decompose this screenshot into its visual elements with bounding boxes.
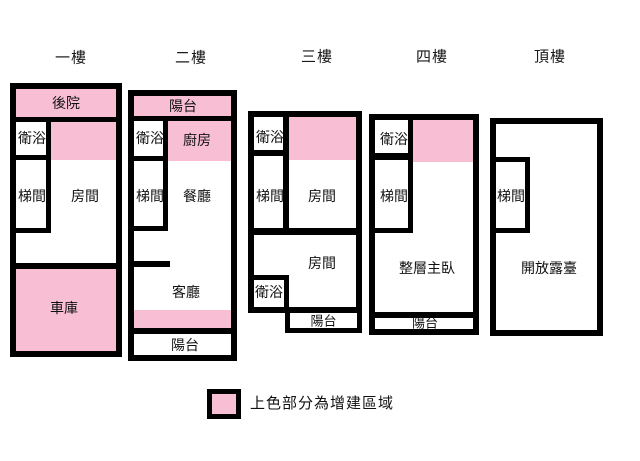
floor-4-wall	[375, 153, 413, 160]
floor-1-label-bathroom: 衛浴	[18, 131, 46, 145]
floor-top-wall	[525, 157, 530, 233]
floor-3-label-room-upper: 房間	[308, 189, 336, 203]
floor-3-wall	[254, 150, 289, 156]
floor-1-title: 一樓	[55, 47, 87, 68]
floor-4-wall	[408, 120, 413, 233]
floor-1-label-room: 房間	[71, 189, 99, 203]
floor-3-label-room-lower: 房間	[308, 256, 336, 270]
floor-4-label-balcony: 陽台	[412, 317, 438, 330]
floor-3-label-bathroom-lower: 衛浴	[255, 285, 283, 299]
floor-2-wall	[134, 328, 231, 334]
floor-2-outline: 陽台衛浴廚房梯間餐廳客廳陽台	[128, 90, 237, 361]
floor-4-label-master-bedroom: 整層主臥	[399, 261, 455, 275]
floor-2-wall	[134, 226, 168, 231]
floor-2-label-bathroom: 衛浴	[136, 131, 164, 145]
floor-2-label-dining-room: 餐廳	[183, 189, 211, 203]
floor-1-outline: 後院衛浴梯間房間車庫	[10, 83, 122, 357]
floor-3-outline: 衛浴梯間房間房間衛浴	[248, 111, 362, 313]
floor-4-outline: 衛浴梯間整層主臥陽台	[369, 114, 479, 335]
floor-3-addition-area	[289, 117, 356, 160]
floor-top-label-open-terrace: 開放露臺	[521, 261, 577, 275]
floor-2-wall	[134, 261, 170, 267]
floor-2-title: 二樓	[175, 47, 207, 68]
floor-1-wall	[16, 228, 51, 233]
floor-3-title: 三樓	[301, 46, 333, 67]
floor-1-label-garage: 車庫	[50, 301, 78, 315]
floor-3-label-bathroom-upper: 衛浴	[256, 130, 284, 144]
floor-top-outline: 梯間開放露臺	[490, 118, 603, 336]
floor-1-wall	[16, 117, 116, 122]
floor-2-wall	[134, 116, 231, 121]
floor-2-label-kitchen: 廚房	[183, 133, 211, 147]
floor-2-label-stairwell: 梯間	[136, 189, 164, 203]
floor-top-title: 頂樓	[534, 46, 566, 67]
floor-1-wall	[16, 155, 51, 160]
floor-2-label-balcony-bottom: 陽台	[171, 338, 199, 352]
floor-3-wall	[254, 228, 356, 235]
floor-3-balcony-annex: 陽台	[285, 313, 362, 333]
floor-3-balcony-annex-label-balcony: 陽台	[310, 314, 336, 327]
floor-4-wall	[375, 228, 413, 233]
floor-1-wall	[16, 263, 116, 269]
floor-4-label-stairwell: 梯間	[380, 189, 408, 203]
floor-1-label-backyard: 後院	[52, 96, 80, 110]
floor-2-addition-strip-area	[134, 310, 231, 328]
floor-4-label-bathroom: 衛浴	[380, 132, 408, 146]
legend-addition-swatch	[207, 389, 241, 419]
floor-3-label-stairwell: 梯間	[256, 189, 284, 203]
floor-2-label-balcony-top: 陽台	[169, 99, 197, 113]
legend-text: 上色部分為增建區域	[250, 389, 394, 419]
floor-1-wall	[46, 122, 51, 233]
floor-1-label-stairwell: 梯間	[18, 189, 46, 203]
floor-2-wall	[134, 156, 168, 161]
floor-top-label-stairwell: 梯間	[497, 189, 525, 203]
floor-4-addition-area	[413, 120, 473, 162]
floor-1-addition-area	[51, 122, 116, 160]
floor-top-wall	[496, 228, 530, 233]
floor-3-wall	[284, 275, 289, 307]
floor-2-label-living-room: 客廳	[172, 285, 200, 299]
floor-plan-diagram: 一樓 二樓 三樓 四樓 頂樓 上色部分為增建區域 後院衛浴梯間房間車庫陽台衛浴廚…	[0, 0, 640, 461]
floor-4-title: 四樓	[416, 46, 448, 67]
